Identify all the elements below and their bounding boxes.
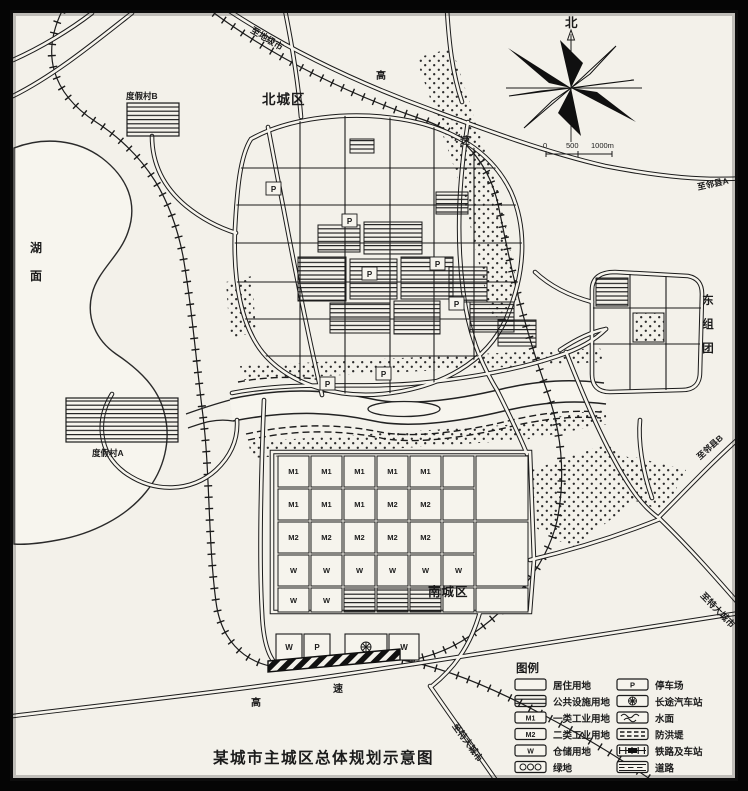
expressway-label-su-bottom: 速 [333, 682, 343, 695]
residential-swatch [515, 679, 546, 690]
legend-label-green: 绿地 [553, 763, 573, 775]
parking-label: P [454, 300, 460, 309]
legend-label-public: 公共设施用地 [553, 697, 611, 709]
parking-label: P [367, 270, 373, 279]
legend-label-residential: 居住用地 [553, 680, 592, 692]
svg-text:湖: 湖 [30, 240, 42, 255]
legend-label-parking: 停车场 [655, 680, 684, 692]
expressway-label-hi: 高 [376, 69, 386, 82]
m1-swatch-text: M1 [526, 716, 536, 723]
m1-block-label: M1 [354, 500, 364, 509]
w-block-label: W [455, 566, 463, 575]
w-block-label: W [290, 596, 298, 605]
m2-block-label: M2 [420, 500, 430, 509]
w-block-label: W [290, 566, 298, 575]
coach-station-swatch-icon [629, 697, 637, 705]
resort-a-label: 度假村A [92, 448, 124, 458]
public-facilities-swatch [515, 696, 546, 707]
parking-label: P [271, 185, 277, 194]
river-island [368, 402, 440, 417]
parking-label: P [347, 217, 353, 226]
coach-station-icon [361, 642, 371, 652]
scale-mid: 500 [566, 141, 579, 150]
legend-title: 图例 [516, 661, 539, 675]
south-district-label: 南城区 [428, 584, 469, 599]
legend-label-coach-station: 长途汽车站 [655, 697, 703, 709]
scale-end: 1000m [591, 141, 614, 150]
m1-block-label: M1 [354, 467, 364, 476]
parking-label: P [435, 260, 441, 269]
w-block-label: W [400, 643, 408, 652]
m2-swatch-text: M2 [526, 732, 536, 739]
resort-b-label: 度假村B [126, 91, 158, 101]
svg-text:面: 面 [30, 269, 42, 283]
w-block-label: W [389, 566, 397, 575]
legend-label-w: 仓储用地 [552, 746, 592, 758]
svg-text:团: 团 [702, 341, 714, 355]
east-cluster-label: 东 组 团 [702, 293, 714, 355]
m2-block-label: M2 [387, 533, 397, 542]
north-district-label: 北城区 [262, 91, 306, 107]
svg-text:东: 东 [702, 293, 714, 307]
legend-label-m2: 二类工业用地 [553, 730, 611, 742]
parking-label: P [381, 370, 387, 379]
m1-block-label: M1 [288, 467, 298, 476]
w-swatch-text: W [527, 749, 534, 756]
legend-label-water: 水面 [655, 713, 675, 725]
legend-label-flood-dike: 防洪堤 [655, 730, 684, 742]
south-city-grid: M1 M1 M1 M1 M1 M1 M1 M1 M2 M2 M2 M2 M2 M… [278, 456, 528, 612]
m1-block-label: M1 [420, 467, 430, 476]
scanned-map-photo: P P P P P P P M1 M1 M1 M1 M1 M1 M [0, 0, 748, 791]
parking-swatch-text: P [630, 681, 635, 690]
m1-block-label: M1 [387, 467, 397, 476]
flood-dike-swatch [617, 729, 648, 740]
m2-block-label: M2 [321, 533, 331, 542]
city-master-plan-map: P P P P P P P M1 M1 M1 M1 M1 M1 M [0, 0, 748, 791]
w-block-label: W [323, 596, 331, 605]
m2-block-label: M2 [387, 500, 397, 509]
parking-label: P [325, 380, 331, 389]
expressway-label-hi-bottom: 高 [251, 696, 261, 709]
m2-block-label: M2 [354, 533, 364, 542]
north-label: 北 [565, 15, 578, 30]
w-block-label: W [356, 566, 364, 575]
legend-label-road: 道路 [655, 763, 675, 775]
w-block-label: W [422, 566, 430, 575]
m1-block-label: M1 [288, 500, 298, 509]
map-title: 某城市主城区总体规划示意图 [213, 748, 434, 767]
scale-zero: 0 [543, 141, 547, 150]
w-block-label: W [323, 566, 331, 575]
legend-label-railway: 铁路及车站 [655, 746, 703, 758]
m2-block-label: M2 [420, 533, 430, 542]
expressway-label-su: 速 [460, 134, 470, 147]
legend-label-m1: 一类工业用地 [553, 713, 611, 725]
m1-block-label: M1 [321, 500, 331, 509]
m1-block-label: M1 [321, 467, 331, 476]
svg-text:组: 组 [702, 317, 714, 331]
m2-block-label: M2 [288, 533, 298, 542]
w-block-label: W [285, 643, 293, 652]
parking-label: P [314, 643, 320, 652]
